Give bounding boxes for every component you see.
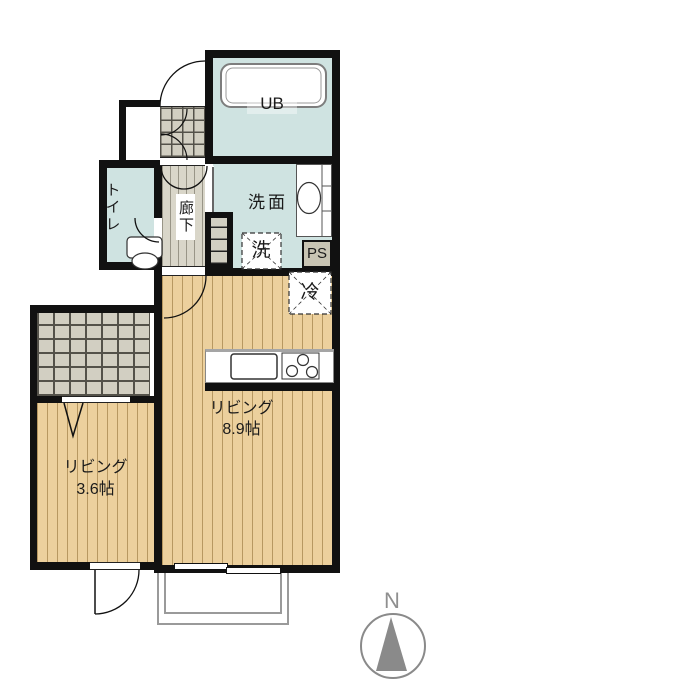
washroom-label: 洗面 — [233, 192, 303, 214]
fridge-label: 冷 — [297, 281, 323, 305]
entrance-door-arc — [160, 61, 205, 106]
living-door-arc — [164, 276, 206, 318]
closet-door-arc — [161, 109, 187, 135]
compass-n-label: N — [378, 589, 406, 613]
stove-burner — [287, 366, 298, 377]
sub-room-door-arc — [95, 570, 139, 614]
ub-label: UB — [247, 94, 297, 114]
living-sub-label: リビング 3.6帖 — [43, 456, 148, 502]
stove-burner — [298, 355, 309, 366]
living-main-label: リビング 8.9帖 — [189, 397, 294, 441]
folding-door-mark — [64, 403, 83, 436]
closet-door-arc — [161, 134, 187, 160]
kitchen-sink — [231, 354, 277, 379]
hallway-label: 廊下 — [176, 194, 195, 240]
toilet-bowl — [132, 253, 158, 269]
toilet-label: トイレ — [103, 166, 121, 248]
floor-plan: PS — [0, 0, 700, 700]
washer-label: 洗 — [248, 239, 274, 263]
fixtures-layer — [0, 0, 700, 700]
hallway-door-arc — [161, 166, 207, 189]
stove-burner — [307, 367, 318, 378]
